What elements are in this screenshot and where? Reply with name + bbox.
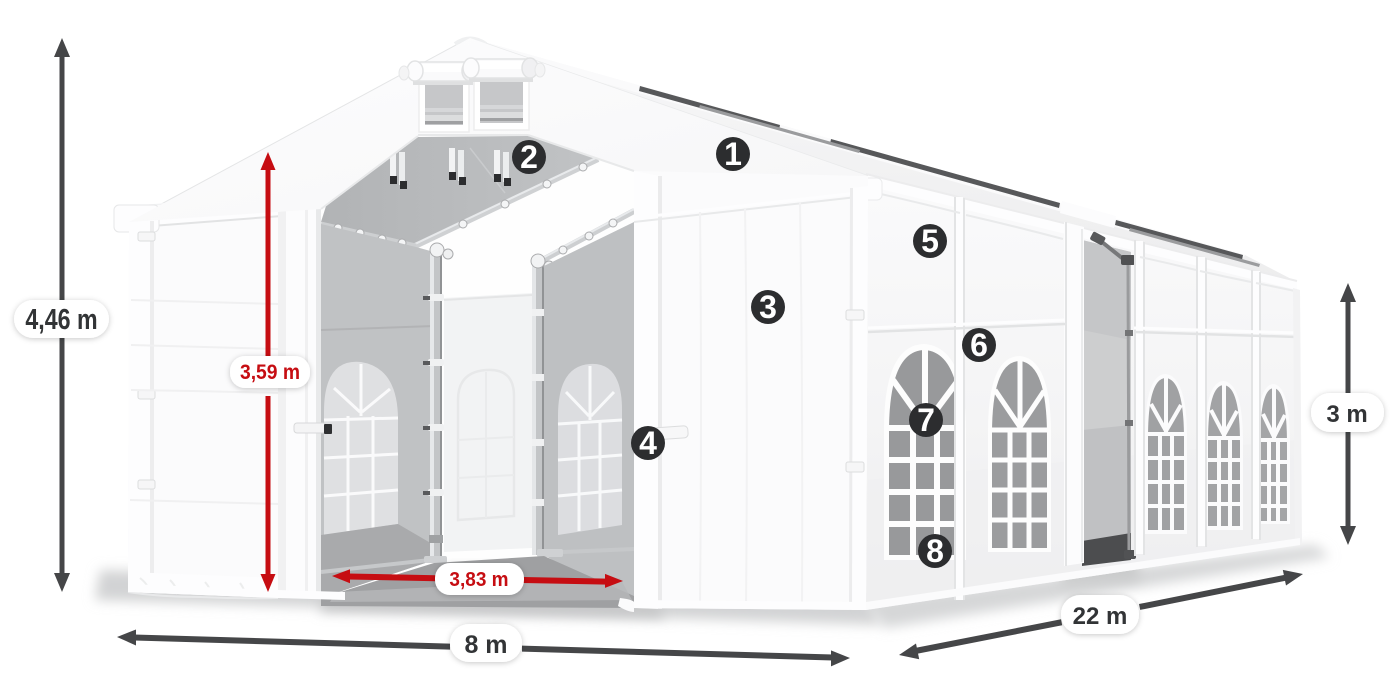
- svg-text:3 m: 3 m: [1326, 401, 1367, 428]
- svg-text:22 m: 22 m: [1073, 603, 1128, 630]
- svg-text:4,46 m: 4,46 m: [25, 302, 97, 335]
- svg-text:8 m: 8 m: [464, 631, 507, 659]
- svg-text:8: 8: [926, 533, 944, 569]
- svg-text:1: 1: [724, 136, 742, 172]
- svg-text:7: 7: [917, 402, 935, 438]
- svg-text:3: 3: [759, 289, 777, 325]
- svg-text:4: 4: [639, 425, 657, 461]
- svg-text:5: 5: [921, 223, 939, 259]
- svg-text:2: 2: [520, 139, 538, 175]
- svg-text:3,59 m: 3,59 m: [240, 361, 300, 384]
- svg-text:6: 6: [970, 327, 988, 363]
- svg-text:3,83 m: 3,83 m: [449, 569, 508, 592]
